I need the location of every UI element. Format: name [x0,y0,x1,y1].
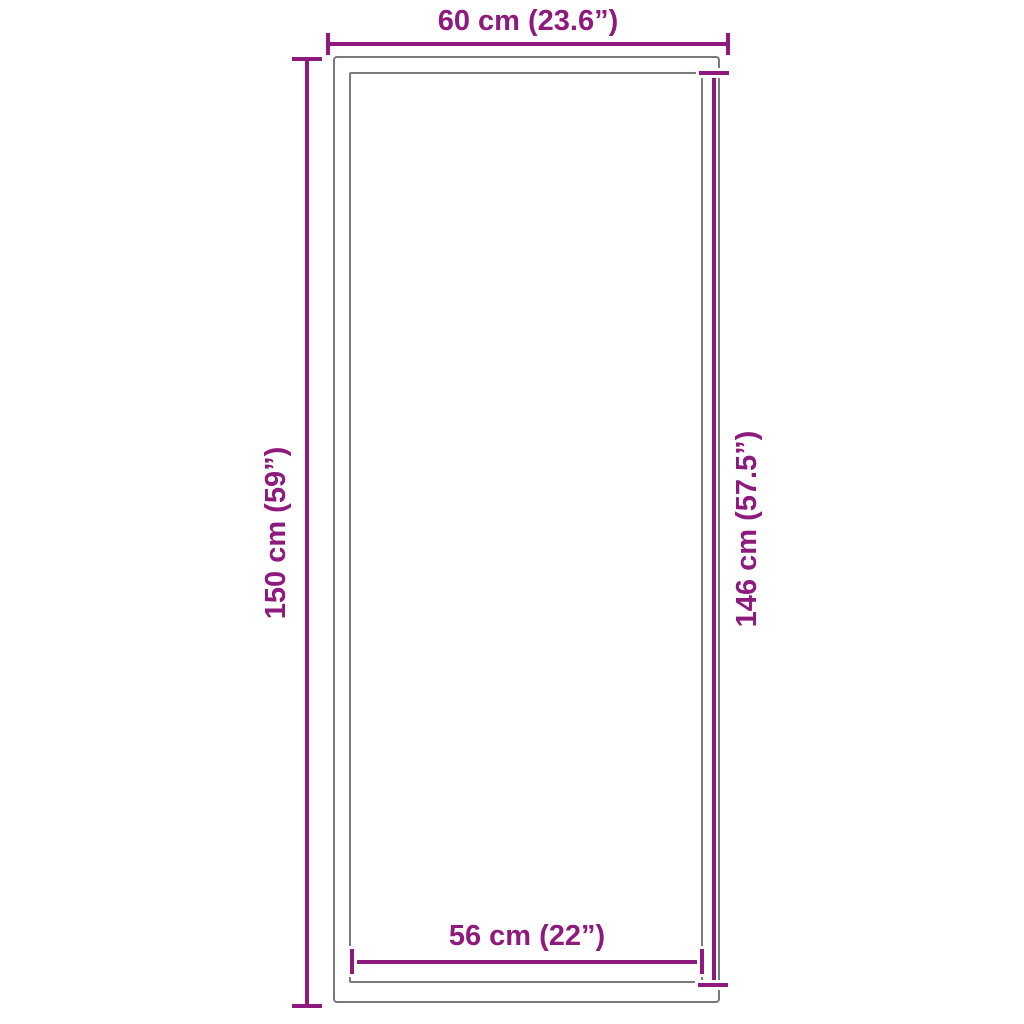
bottom-dimension-line [352,960,702,964]
left-dimension-bottom-cap [292,1004,322,1008]
top-dimension-label: 60 cm (23.6”) [328,1,728,41]
right-dimension-top-cap [699,71,729,75]
bottom-dimension-label: 56 cm (22”) [327,916,727,956]
left-dimension-top-cap [292,57,322,61]
left-dimension-line [305,59,309,1006]
top-dimension-line [328,42,728,46]
right-dimension-label: 146 cm (57.5”) [727,379,767,679]
inner-rectangle [349,72,703,983]
left-dimension-label: 150 cm (59”) [256,383,296,683]
right-dimension-bottom-cap [698,983,728,987]
right-dimension-line [712,73,716,985]
dimension-diagram: 60 cm (23.6”) 150 cm (59”) 146 cm (57.5”… [0,0,1024,1024]
